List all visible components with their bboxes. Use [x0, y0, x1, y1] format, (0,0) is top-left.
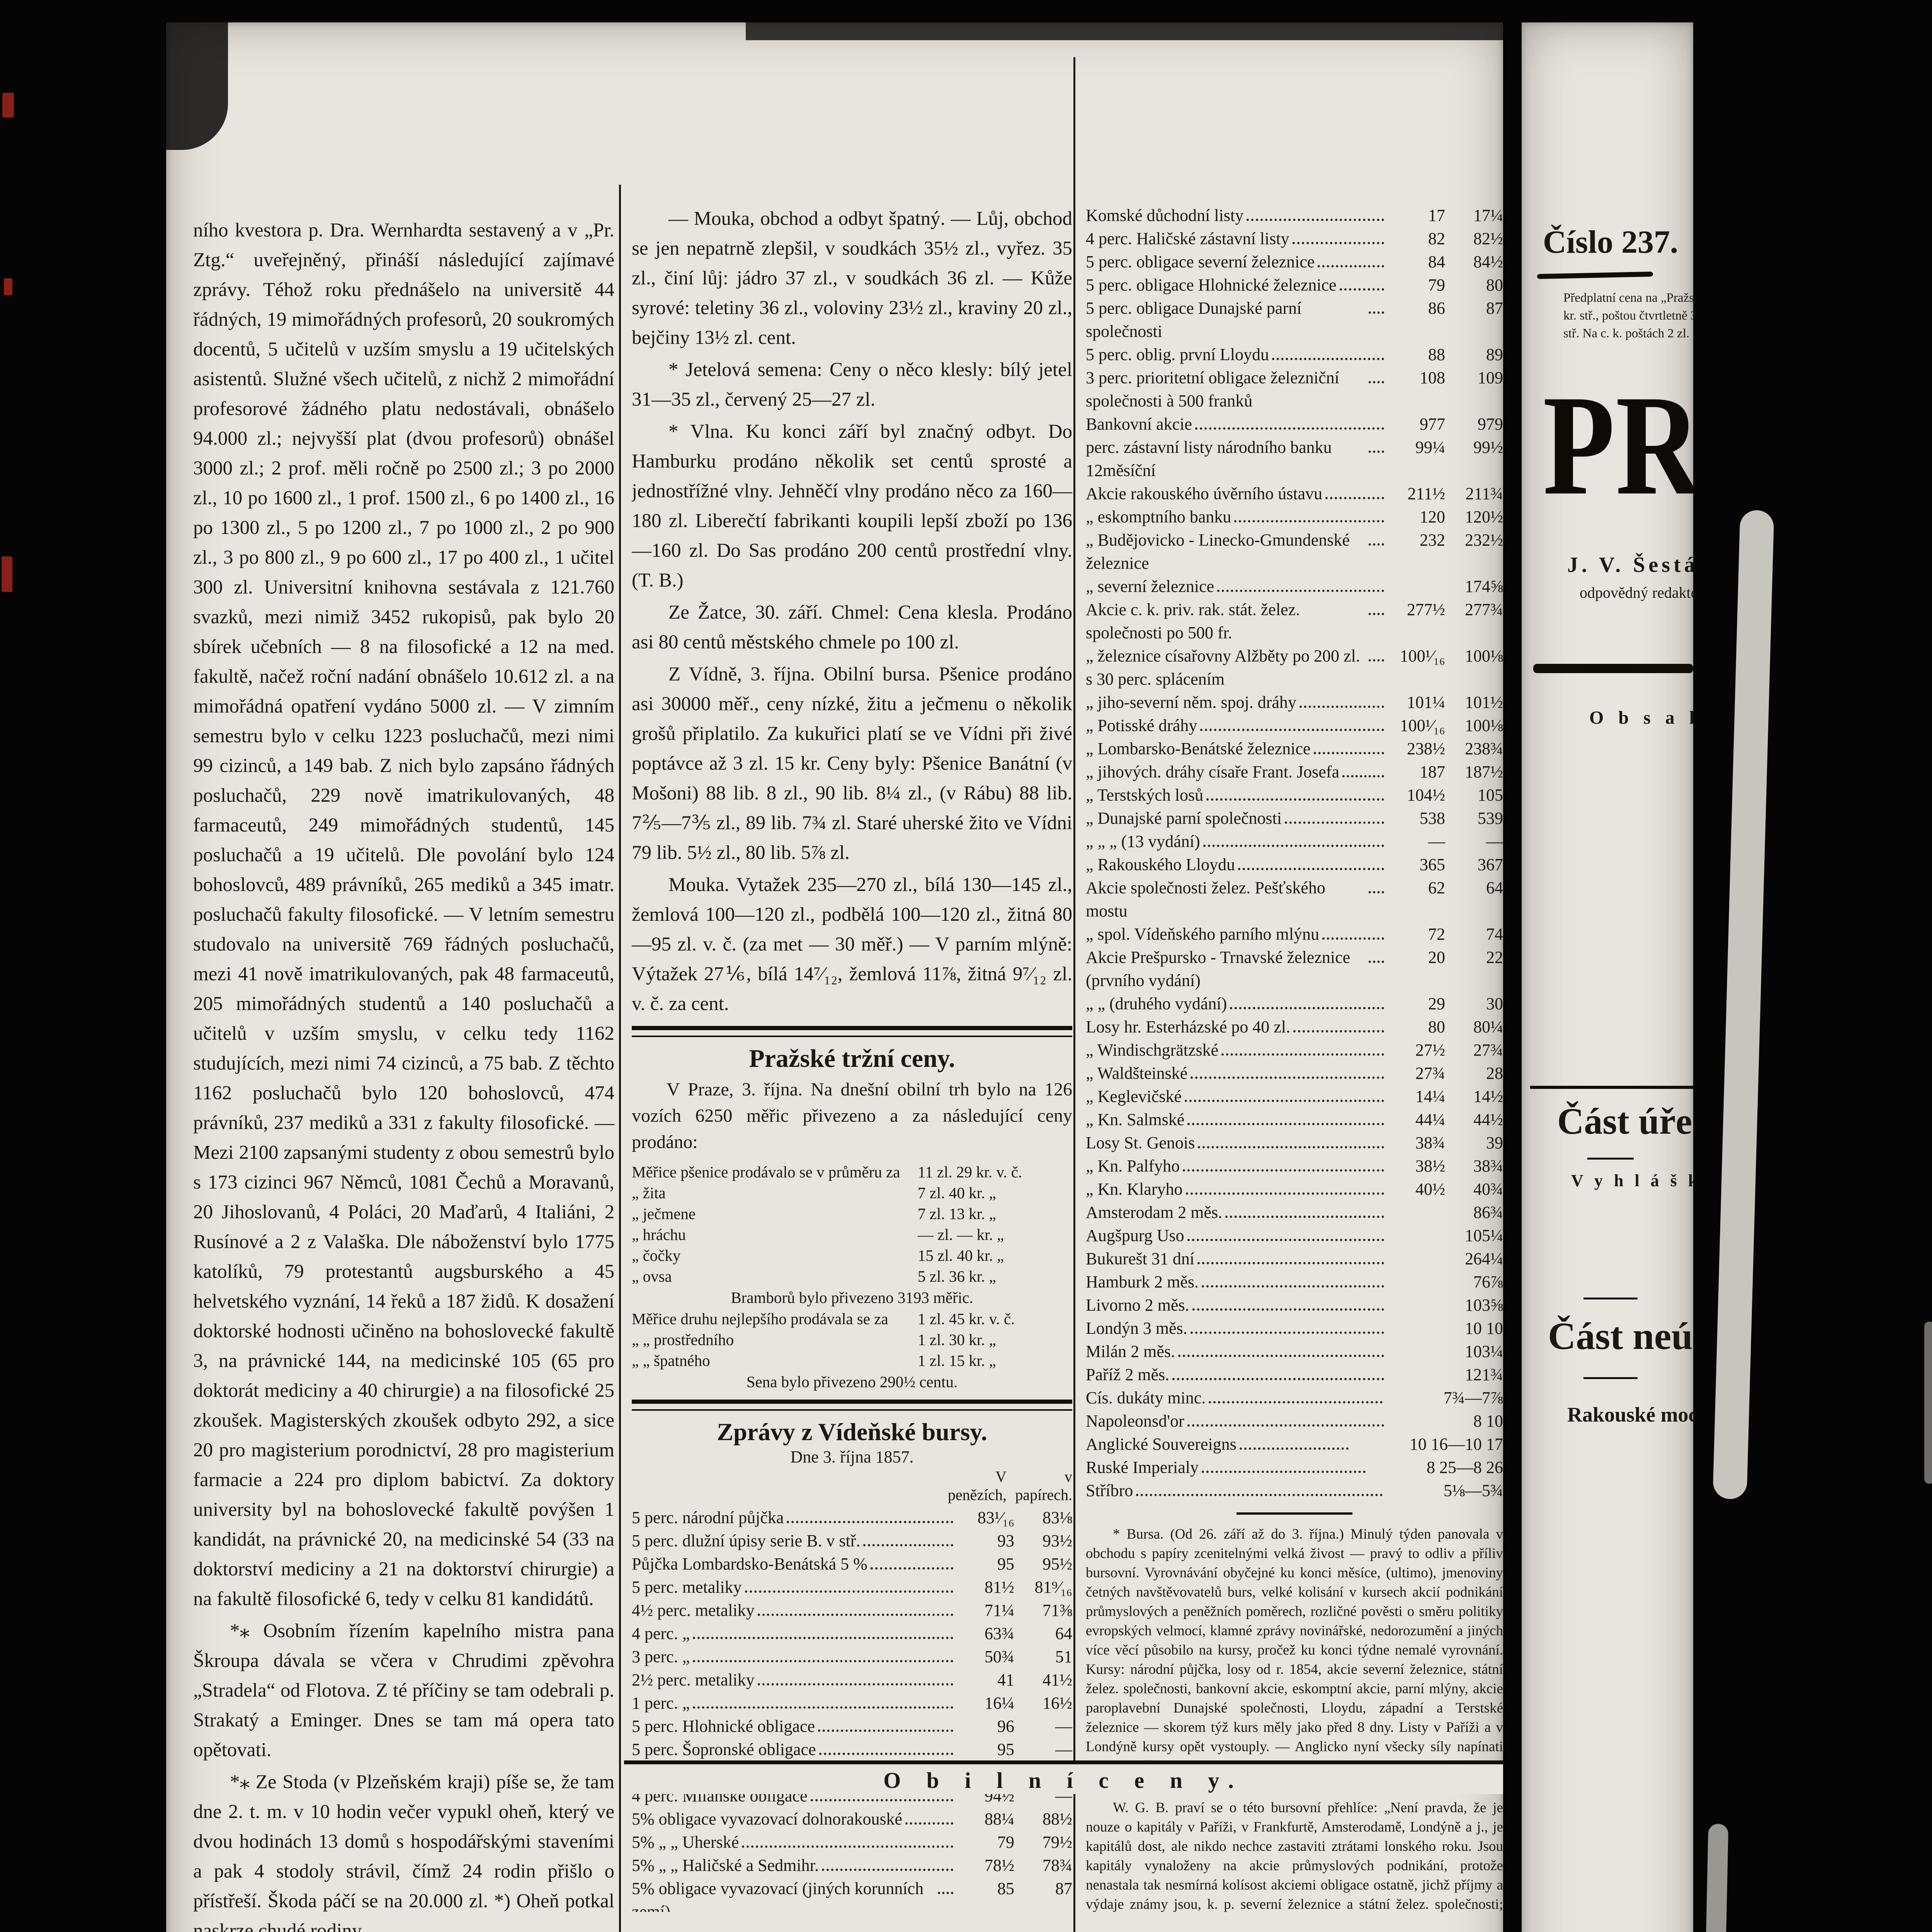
- securities-quote-row: „ Kn. Salmské44¼44½: [1086, 1108, 1503, 1131]
- quote-label: „ Budějovicko - Linecko-Gmundenské želez…: [1086, 529, 1366, 575]
- quote-label: „ severní železnice: [1086, 575, 1214, 598]
- quote-label: „ Keglevičské: [1086, 1085, 1182, 1108]
- dotted-leader: [1187, 1424, 1384, 1427]
- securities-quote-row: 5 perc. obligace severní železnice8484½: [1086, 250, 1503, 274]
- dotted-leader: [1369, 451, 1384, 453]
- dotted-leader: [811, 1799, 953, 1801]
- dotted-leader: [1342, 775, 1384, 777]
- quote-label: „ Waldšteinské: [1086, 1062, 1187, 1085]
- average-label: „ ovsa: [632, 1266, 918, 1287]
- quote-label: Augšpurg Uso: [1086, 1224, 1184, 1247]
- quote-paper-value: 80¼: [1445, 1015, 1503, 1039]
- quote-money-value: 96: [956, 1715, 1014, 1738]
- quote-paper-value: 64: [1014, 1622, 1072, 1645]
- quote-label: 5 perc. dlužní úpisy serie B. v stř.: [632, 1529, 860, 1553]
- dotted-leader: [1299, 706, 1384, 708]
- quote-money-value: 108: [1387, 366, 1445, 389]
- issue-number: Číslo 237.: [1543, 223, 1678, 261]
- securities-quote-row: „ spol. Vídeňského parního mlýnu7274: [1086, 923, 1503, 946]
- securities-quote-row: Bukurešt 31 dní264¼: [1086, 1247, 1503, 1270]
- dotted-leader: [1369, 961, 1384, 963]
- body-paragraph: *⁎ Osobním řízením kapelního mistra pana…: [193, 1616, 614, 1765]
- quote-money-value: 80: [1387, 1015, 1445, 1039]
- quote-money-value: 93: [956, 1529, 1014, 1553]
- quote-label: 4½ perc. metaliky: [632, 1599, 755, 1622]
- quote-paper-value: 99½: [1445, 436, 1503, 459]
- quote-label: „ Lombarsko-Benátské železnice: [1086, 737, 1311, 760]
- dotted-leader: [1369, 543, 1384, 546]
- quote-label: Komské důchodní listy: [1086, 204, 1243, 227]
- dotted-leader: [745, 1590, 953, 1593]
- dotted-leader: [1221, 1053, 1384, 1056]
- securities-quote-row: „ Dunajské parní společnosti538539: [1086, 807, 1503, 830]
- average-label: Měřice pšenice prodávalo se v průměru za: [632, 1162, 918, 1182]
- average-value: 7 zl. 40 kr. „: [918, 1182, 1072, 1203]
- quote-paper-value: 44½: [1445, 1108, 1503, 1131]
- dotted-leader: [693, 1660, 953, 1662]
- film-edge-mark: [2, 93, 14, 117]
- quote-label: Bankovní akcie: [1086, 413, 1192, 436]
- body-paragraph: Mouka. Vytažek 235—270 zl., bílá 130—145…: [632, 870, 1072, 1019]
- dotted-leader: [1225, 1216, 1384, 1218]
- quote-money-value: 88¼: [956, 1808, 1014, 1831]
- bourse-quote-row: 5% „ „ Haličské a Sedmihr.78½78¾: [632, 1854, 1072, 1877]
- securities-quote-row: Losy hr. Esterházské po 40 zl.8080¼: [1086, 1015, 1503, 1039]
- quote-label: „ jihových. dráhy císaře Frant. Josefa: [1086, 760, 1339, 784]
- dotted-leader: [1200, 729, 1384, 731]
- quote-paper-value: 27¾: [1445, 1039, 1503, 1062]
- quote-paper-value: 232½: [1445, 529, 1503, 552]
- quote-paper-value: —: [1014, 1715, 1072, 1738]
- dotted-leader: [822, 1869, 953, 1871]
- editor-role: odpovědný redaktor.: [1580, 583, 1693, 602]
- body-paragraph: — Mouka, obchod a odbyt špatný. — Lůj, o…: [632, 204, 1072, 353]
- bourse-quote-row: 5 perc. metaliky81½81⁹⁄₁₆: [632, 1576, 1072, 1599]
- quote-label: 5 perc. oblig. první Lloydu: [1086, 343, 1269, 366]
- dotted-leader: [693, 1706, 953, 1709]
- securities-quote-row: Bankovní akcie977979: [1086, 413, 1503, 436]
- vienna-bourse-title: Zprávy z Vídeňské bursy.: [632, 1418, 1072, 1446]
- masthead-rule: [1533, 664, 1693, 673]
- quote-money-value: 83¹⁄₁₆: [956, 1506, 1014, 1529]
- quote-money-value: 277½: [1387, 598, 1445, 621]
- quote-money-value: 27½: [1387, 1039, 1445, 1062]
- quote-money-value: 62: [1387, 876, 1445, 900]
- dotted-leader: [1195, 427, 1384, 430]
- quote-paper-value: 30: [1445, 992, 1503, 1015]
- quote-paper-value: 100⅛: [1445, 714, 1503, 737]
- quote-money-value: 86: [1387, 297, 1445, 320]
- quote-money-value: 44¼: [1387, 1108, 1445, 1131]
- quote-paper-value: 101½: [1445, 691, 1503, 714]
- securities-quote-row: Hamburk 2 měs.76⅞: [1086, 1270, 1503, 1294]
- quote-label: Hamburk 2 měs.: [1086, 1270, 1199, 1294]
- dotted-leader: [1187, 1123, 1384, 1125]
- quote-label: Paříž 2 měs.: [1086, 1363, 1169, 1386]
- bourse-quote-row: 3 perc. „50¾51: [632, 1645, 1072, 1668]
- quote-paper-value: 28: [1445, 1062, 1503, 1085]
- body-paragraph: Ze Žatce, 30. září. Chmel: Cena klesla. …: [632, 598, 1072, 657]
- quote-label: Losy St. Genois: [1086, 1131, 1195, 1155]
- quote-paper-value: 79½: [1014, 1831, 1072, 1854]
- grain-prices-section: O b i l n í c e n y.: [624, 1760, 1503, 1794]
- dotted-leader: [1293, 242, 1384, 244]
- quote-money-value: 41: [956, 1668, 1014, 1692]
- quote-label: 5 perc. Šopronské obligace: [632, 1738, 816, 1761]
- quote-label: Ruské Imperialy: [1086, 1456, 1199, 1479]
- quote-money-value: 95: [956, 1553, 1014, 1576]
- body-paragraph: *⁎ Ze Stoda (v Plzeňském kraji) píše se,…: [193, 1767, 614, 1932]
- quote-paper-value: 211¾: [1445, 482, 1503, 505]
- quote-label: 5 perc. obligace Hlohnické železnice: [1086, 274, 1337, 297]
- securities-quote-row: „ „ (druhého vydání)2930: [1086, 992, 1503, 1015]
- quote-paper-value: 100⅛: [1445, 645, 1503, 668]
- column-divider: [619, 185, 621, 1932]
- potato-grade-row: „ „ prostředního1 zl. 30 kr. „: [632, 1329, 1072, 1350]
- quote-money-value: 40½: [1387, 1178, 1445, 1201]
- quote-label: „ Terstských losů: [1086, 784, 1203, 807]
- quote-paper-value: 80: [1445, 274, 1503, 297]
- quote-money-value: 232: [1387, 529, 1445, 552]
- quote-paper-value: 5⅛—5¾: [1444, 1479, 1503, 1502]
- dotted-leader: [693, 1637, 953, 1639]
- quote-paper-value: 8 25—8 26: [1427, 1456, 1503, 1479]
- university-report-paragraphs: ního kvestora p. Dra. Wernhardta sestave…: [193, 216, 614, 1932]
- bourse-review-paragraph: * Bursa. (Od 26. září až do 3. října.) M…: [1086, 1525, 1503, 1795]
- quote-label: 3 perc. „: [632, 1645, 690, 1668]
- securities-quote-row: „ jihových. dráhy císaře Frant. Josefa18…: [1086, 760, 1503, 784]
- securities-quote-row: Londýn 3 měs.10 10: [1086, 1317, 1503, 1340]
- hay-delivery-line: Sena bylo přivezeno 290½ centu.: [632, 1371, 1072, 1393]
- scan-smudge: [166, 22, 228, 150]
- securities-quote-row: „ železnice císařovny Alžběty po 200 zl.…: [1086, 645, 1503, 691]
- bourse-quote-row: 4 perc. „63¾64: [632, 1622, 1072, 1645]
- quote-money-value: 72: [1387, 923, 1445, 946]
- quote-label: Akcie Prešpursko - Trnavské železnice (p…: [1086, 946, 1366, 992]
- quote-label: „ Kn. Salmské: [1086, 1108, 1184, 1131]
- dotted-leader: [1203, 845, 1384, 847]
- securities-quote-row: „ Rakouského Lloydu365367: [1086, 853, 1503, 876]
- newspaper-right-page: Číslo 237. Předplatní cena na „Pražské N…: [1522, 22, 1693, 1932]
- middle-column: — Mouka, obchod a odbyt špatný. — Lůj, o…: [632, 204, 1072, 1912]
- bourse-column-heads: V penězích, v papírech.: [632, 1468, 1072, 1504]
- quote-paper-value: 264¼: [1445, 1247, 1503, 1270]
- securities-quote-row: „ Waldšteinské27¾28: [1086, 1062, 1503, 1085]
- bourse-quote-row: 5% „ „ Uherské7979½: [632, 1831, 1072, 1854]
- quote-label: „ jiho-severní něm. spoj. dráhy: [1086, 691, 1296, 714]
- quote-label: „ „ „ (13 vydání): [1086, 830, 1200, 853]
- securities-quote-row: „ Kn. Palfyho38½38¾: [1086, 1155, 1503, 1178]
- quote-money-value: 71¼: [956, 1599, 1014, 1622]
- securities-quote-row: Stříbro5⅛—5¾: [1086, 1479, 1503, 1502]
- quote-money-value: 79: [1387, 274, 1445, 297]
- securities-quote-row: Paříž 2 měs.121¾: [1086, 1363, 1503, 1386]
- quote-label: Anglické Souvereigns: [1086, 1433, 1236, 1456]
- quote-label: Livorno 2 měs.: [1086, 1294, 1189, 1317]
- quote-paper-value: 10 16—10 17: [1410, 1433, 1503, 1456]
- dotted-leader: [938, 1892, 953, 1894]
- quote-money-value: 27¾: [1387, 1062, 1445, 1085]
- quote-money-value: —: [1387, 830, 1445, 853]
- securities-quote-row: Milán 2 měs.103¼: [1086, 1340, 1503, 1363]
- dotted-leader: [1238, 868, 1384, 870]
- dotted-leader: [1325, 497, 1384, 499]
- quote-money-value: 79: [956, 1831, 1014, 1854]
- average-label: „ hráchu: [632, 1224, 918, 1245]
- grain-prices-title: O b i l n í c e n y.: [624, 1760, 1503, 1794]
- securities-quote-row: „ Windischgrätzské27½27¾: [1086, 1039, 1503, 1062]
- dotted-leader: [1183, 1169, 1384, 1172]
- quote-label: „ Kn. Palfyho: [1086, 1155, 1180, 1178]
- quote-money-value: 100¹⁄₁₆: [1387, 645, 1445, 668]
- quote-paper-value: 539: [1445, 807, 1503, 830]
- column-divider: [1073, 57, 1075, 1932]
- quote-paper-value: 87: [1014, 1877, 1072, 1900]
- quote-paper-value: 81⁹⁄₁₆: [1014, 1576, 1072, 1599]
- dotted-leader: [1369, 381, 1384, 383]
- quote-label: 5% „ „ Uherské: [632, 1831, 739, 1854]
- bourse-quote-row: Půjčka Lombardsko-Benátská 5 %9595½: [632, 1553, 1072, 1576]
- quote-label: 4 perc. „: [632, 1622, 690, 1645]
- quote-label: 3 perc. prioritetní obligace železniční …: [1086, 366, 1366, 413]
- average-row: „ hráchu— zl. — kr. „: [632, 1224, 1072, 1245]
- quote-label: Londýn 3 měs.: [1086, 1317, 1187, 1340]
- securities-quote-row: Cís. dukáty minc.7¾—7⅞: [1086, 1386, 1503, 1410]
- dotted-leader: [1202, 1285, 1384, 1287]
- securities-quote-row: Akcie Prešpursko - Trnavské železnice (p…: [1086, 946, 1503, 992]
- quote-money-value: 365: [1387, 853, 1445, 876]
- quote-money-value: 100¹⁄₁₆: [1387, 714, 1445, 737]
- securities-quote-row: Akcie c. k. priv. rak. stát. želez. spol…: [1086, 598, 1503, 645]
- quote-paper-value: 82½: [1445, 227, 1503, 250]
- quote-paper-value: 88½: [1014, 1808, 1072, 1831]
- page-edge-sliver: [1924, 1321, 1932, 1484]
- bourse-quote-row: 4½ perc. metaliky71¼71⅜: [632, 1599, 1072, 1622]
- quote-label: „ spol. Vídeňského parního mlýnu: [1086, 923, 1319, 946]
- dotted-leader: [1197, 1262, 1384, 1264]
- quote-money-value: 63¾: [956, 1622, 1014, 1645]
- bourse-quote-row: 5% obligace vyvazovací dolnorakouské88¼8…: [632, 1808, 1072, 1831]
- average-value: 7 zl. 13 kr. „: [918, 1203, 1072, 1224]
- right-column: Komské důchodní listy1717¼4 perc. Haličs…: [1086, 204, 1503, 1912]
- dotted-leader: [1217, 590, 1384, 592]
- dotted-leader: [1198, 1146, 1384, 1148]
- quote-paper-value: 76⅞: [1445, 1270, 1503, 1294]
- quote-label: 4 perc. Haličské zástavní listy: [1086, 227, 1289, 250]
- austrian-monarchy-heading: Rakouské mocnářství.: [1567, 1403, 1693, 1427]
- quote-money-value: 17: [1387, 204, 1445, 227]
- average-value: 1 zl. 15 kr. „: [918, 1350, 1072, 1371]
- securities-quote-row: Anglické Souvereigns10 16—10 17: [1086, 1433, 1503, 1456]
- bourse-review-paragraph: W. G. B. praví se o této bursovní přehlí…: [1086, 1798, 1503, 1912]
- quote-label: „ Potisské dráhy: [1086, 714, 1197, 737]
- securities-quote-row: „ „ „ (13 vydání)——: [1086, 830, 1503, 853]
- bourse-quote-row: 5 perc. Šopronské obligace95—: [632, 1738, 1072, 1761]
- quote-paper-value: 103¼: [1445, 1340, 1503, 1363]
- dotted-leader: [1247, 219, 1384, 221]
- quote-money-value: 211½: [1387, 482, 1445, 505]
- bourse-quote-list: 5 perc. národní půjčka83¹⁄₁₆83⅛5 perc. d…: [632, 1506, 1072, 1912]
- bourse-paper-head: v papírech.: [1007, 1468, 1072, 1504]
- dotted-leader: [1318, 265, 1384, 267]
- quote-paper-value: 17¼: [1445, 204, 1503, 227]
- average-label: „ ječmene: [632, 1203, 918, 1224]
- potato-delivery-line: Bramborů bylo přivezeno 3193 měřic.: [632, 1287, 1072, 1308]
- quote-paper-value: 238¾: [1445, 737, 1503, 760]
- quote-paper-value: 71⅜: [1014, 1599, 1072, 1622]
- body-paragraph: Z Vídně, 3. října. Obilní bursa. Pšenice…: [632, 660, 1072, 868]
- average-price-lines: Měřice pšenice prodávalo se v průměru za…: [632, 1162, 1072, 1287]
- securities-quote-row: „ Kn. Klaryho40½40¾: [1086, 1178, 1503, 1201]
- quote-label: „ eskomptního banku: [1086, 505, 1231, 529]
- quote-paper-value: 120½: [1445, 505, 1503, 529]
- quote-label: „ železnice císařovny Alžběty po 200 zl.…: [1086, 645, 1366, 691]
- quote-money-value: 101¼: [1387, 691, 1445, 714]
- average-row: „ ovsa5 zl. 36 kr. „: [632, 1266, 1072, 1287]
- potato-grade-row: „ „ špatného1 zl. 15 kr. „: [632, 1350, 1072, 1371]
- quote-money-value: 29: [1387, 992, 1445, 1015]
- dotted-leader: [1190, 1077, 1384, 1079]
- quote-money-value: 977: [1387, 413, 1445, 436]
- left-column-text: ního kvestora p. Dra. Wernhardta sestave…: [193, 216, 614, 1932]
- quote-paper-value: 95½: [1014, 1553, 1072, 1576]
- securities-quote-row: 5 perc. obligace Hlohnické železnice7980: [1086, 274, 1503, 297]
- bourse-quote-row: 5 perc. Hlohnické obligace96—: [632, 1715, 1072, 1738]
- dotted-leader: [1234, 520, 1384, 522]
- securities-quote-row: „ Terstských losů104½105: [1086, 784, 1503, 807]
- quote-label: „ „ (druhého vydání): [1086, 992, 1227, 1015]
- quote-money-value: 14¼: [1387, 1085, 1445, 1108]
- prague-market-prices-title: Pražské tržní ceny.: [632, 1044, 1072, 1073]
- securities-quote-row: perc. zástavní listy národního banku 12m…: [1086, 436, 1503, 482]
- dotted-leader: [742, 1845, 953, 1848]
- securities-quote-row: „ jiho-severní něm. spoj. dráhy101¼101½: [1086, 691, 1503, 714]
- quote-money-value: 538: [1387, 807, 1445, 830]
- securities-quote-row: Augšpurg Uso105¼: [1086, 1224, 1503, 1247]
- average-label: „ žita: [632, 1182, 918, 1203]
- quote-money-value: 85: [956, 1877, 1014, 1900]
- bourse-quote-row: 2½ perc. metaliky4141½: [632, 1668, 1072, 1692]
- contents-title: O b s a h.: [1589, 707, 1693, 728]
- securities-quote-row: „ Keglevičské14¼14½: [1086, 1085, 1503, 1108]
- quote-paper-value: 74: [1445, 923, 1503, 946]
- dotted-leader: [819, 1753, 953, 1755]
- securities-quote-row: Ruské Imperialy8 25—8 26: [1086, 1456, 1503, 1479]
- dotted-leader: [1190, 1332, 1384, 1334]
- section-rule: [632, 1026, 1072, 1037]
- divider: [1583, 1298, 1638, 1299]
- quote-paper-value: 39: [1445, 1131, 1503, 1155]
- issue-number-flourish: [1537, 272, 1653, 279]
- bourse-quote-row: 5 perc. dlužní úpisy serie B. v stř.9393…: [632, 1529, 1072, 1553]
- quote-paper-value: 103⅝: [1445, 1294, 1503, 1317]
- quote-paper-value: 14½: [1445, 1085, 1503, 1108]
- average-label: Měřice druhu nejlepšího prodávala se za: [632, 1308, 918, 1329]
- securities-quote-row: „ severní železnice174⅝: [1086, 575, 1503, 598]
- quote-label: 5% „ „ Haličské a Sedmihr.: [632, 1854, 819, 1877]
- quote-paper-value: 89: [1445, 343, 1503, 366]
- quote-money-value: 50¾: [956, 1645, 1014, 1668]
- quote-paper-value: 105: [1445, 784, 1503, 807]
- bourse-week-review: * Bursa. (Od 26. září až do 3. října.) M…: [1086, 1525, 1503, 1912]
- page-edge-sliver: [1713, 510, 1774, 1499]
- quote-money-value: 20: [1387, 946, 1445, 969]
- quote-money-value: 38¾: [1387, 1131, 1445, 1155]
- average-label: „ čočky: [632, 1245, 918, 1266]
- quote-paper-value: 83⅛: [1014, 1506, 1072, 1529]
- quote-label: Akcie c. k. priv. rak. stát. želez. spol…: [1086, 598, 1366, 645]
- average-row: „ ječmene7 zl. 13 kr. „: [632, 1203, 1072, 1224]
- securities-quote-row: „ eskomptního banku120120½: [1086, 505, 1503, 529]
- bourse-quote-row: 5% obligace vyvazovací (jiných korunních…: [632, 1877, 1072, 1912]
- dotted-leader: [871, 1567, 953, 1570]
- quote-label: 1 perc. „: [632, 1692, 690, 1715]
- quote-money-value: 99¼: [1387, 436, 1445, 459]
- securities-quote-row: 4 perc. Haličské zástavní listy8282½: [1086, 227, 1503, 250]
- body-paragraph: * Jetelová semena: Ceny o něco klesly: b…: [632, 355, 1072, 415]
- quote-money-value: 38½: [1387, 1155, 1445, 1178]
- contents-rule: [1530, 1086, 1693, 1089]
- dotted-leader: [863, 1544, 953, 1546]
- quote-money-value: 82: [1387, 227, 1445, 250]
- dotted-leader: [1172, 1378, 1384, 1380]
- dotted-leader: [1314, 752, 1384, 754]
- dotted-leader: [1322, 937, 1384, 940]
- body-paragraph: ního kvestora p. Dra. Wernhardta sestave…: [193, 216, 614, 1614]
- quote-money-value: 95: [956, 1738, 1014, 1761]
- quote-label: 5% obligace vyvazovací dolnorakouské: [632, 1808, 902, 1831]
- quote-label: „ Rakouského Lloydu: [1086, 853, 1235, 876]
- dotted-leader: [1186, 1192, 1384, 1195]
- scan-smudge: [746, 22, 1503, 40]
- securities-quote-row: Komské důchodní listy1717¼: [1086, 204, 1503, 227]
- dotted-leader: [1178, 1355, 1384, 1357]
- dotted-leader: [1187, 1239, 1384, 1241]
- dotted-leader: [1202, 1471, 1366, 1473]
- average-value: 5 zl. 36 kr. „: [918, 1266, 1072, 1287]
- decree-heading: V y h l á š k a.: [1571, 1171, 1693, 1190]
- securities-quote-list: Komské důchodní listy1717¼4 perc. Haličs…: [1086, 204, 1503, 1502]
- quote-label: „ Windischgrätzské: [1086, 1039, 1218, 1062]
- quote-money-value: 81½: [956, 1576, 1014, 1599]
- quote-paper-value: 174⅝: [1445, 575, 1503, 598]
- dotted-leader: [758, 1614, 953, 1616]
- bourse-money-head: V penězích,: [941, 1468, 1007, 1504]
- quote-label: Akcie společnosti želez. Pešťského mostu: [1086, 876, 1366, 923]
- bourse-quote-row: 5 perc. národní půjčka83¹⁄₁₆83⅛: [632, 1506, 1072, 1529]
- dotted-leader: [787, 1521, 953, 1523]
- dotted-leader: [1192, 1308, 1384, 1311]
- quote-money-value: 104½: [1387, 784, 1445, 807]
- prague-market-prices-intro: V Praze, 3. října. Na dnešní obilní trh …: [632, 1077, 1072, 1155]
- quote-label: Stříbro: [1086, 1479, 1133, 1502]
- securities-quote-row: Akcie společnosti želez. Pešťského mostu…: [1086, 876, 1503, 923]
- dotted-leader: [1285, 821, 1384, 824]
- securities-quote-row: Amsterodam 2 měs.86¾: [1086, 1201, 1503, 1224]
- masthead-title: PRAŽSKÉ: [1543, 362, 1693, 528]
- quote-paper-value: 22: [1445, 946, 1503, 969]
- subscription-notice: Předplatní cena na „Pražské Noviny“ s př…: [1563, 289, 1693, 342]
- scanned-newspaper-photo: ního kvestora p. Dra. Wernhardta sestave…: [0, 0, 1932, 1932]
- securities-quote-row: „ Lombarsko-Benátské železnice238½238¾: [1086, 737, 1503, 760]
- securities-quote-row: Losy St. Genois38¾39: [1086, 1131, 1503, 1155]
- quote-label: Akcie rakouského úvěrního ústavu: [1086, 482, 1322, 505]
- quote-paper-value: 64: [1445, 876, 1503, 900]
- average-row: „ čočky15 zl. 40 kr. „: [632, 1245, 1072, 1266]
- average-value: 1 zl. 45 kr. v. č.: [918, 1308, 1072, 1329]
- securities-quote-row: 5 perc. oblig. první Lloydu8889: [1086, 343, 1503, 366]
- section-rule: [632, 1400, 1072, 1411]
